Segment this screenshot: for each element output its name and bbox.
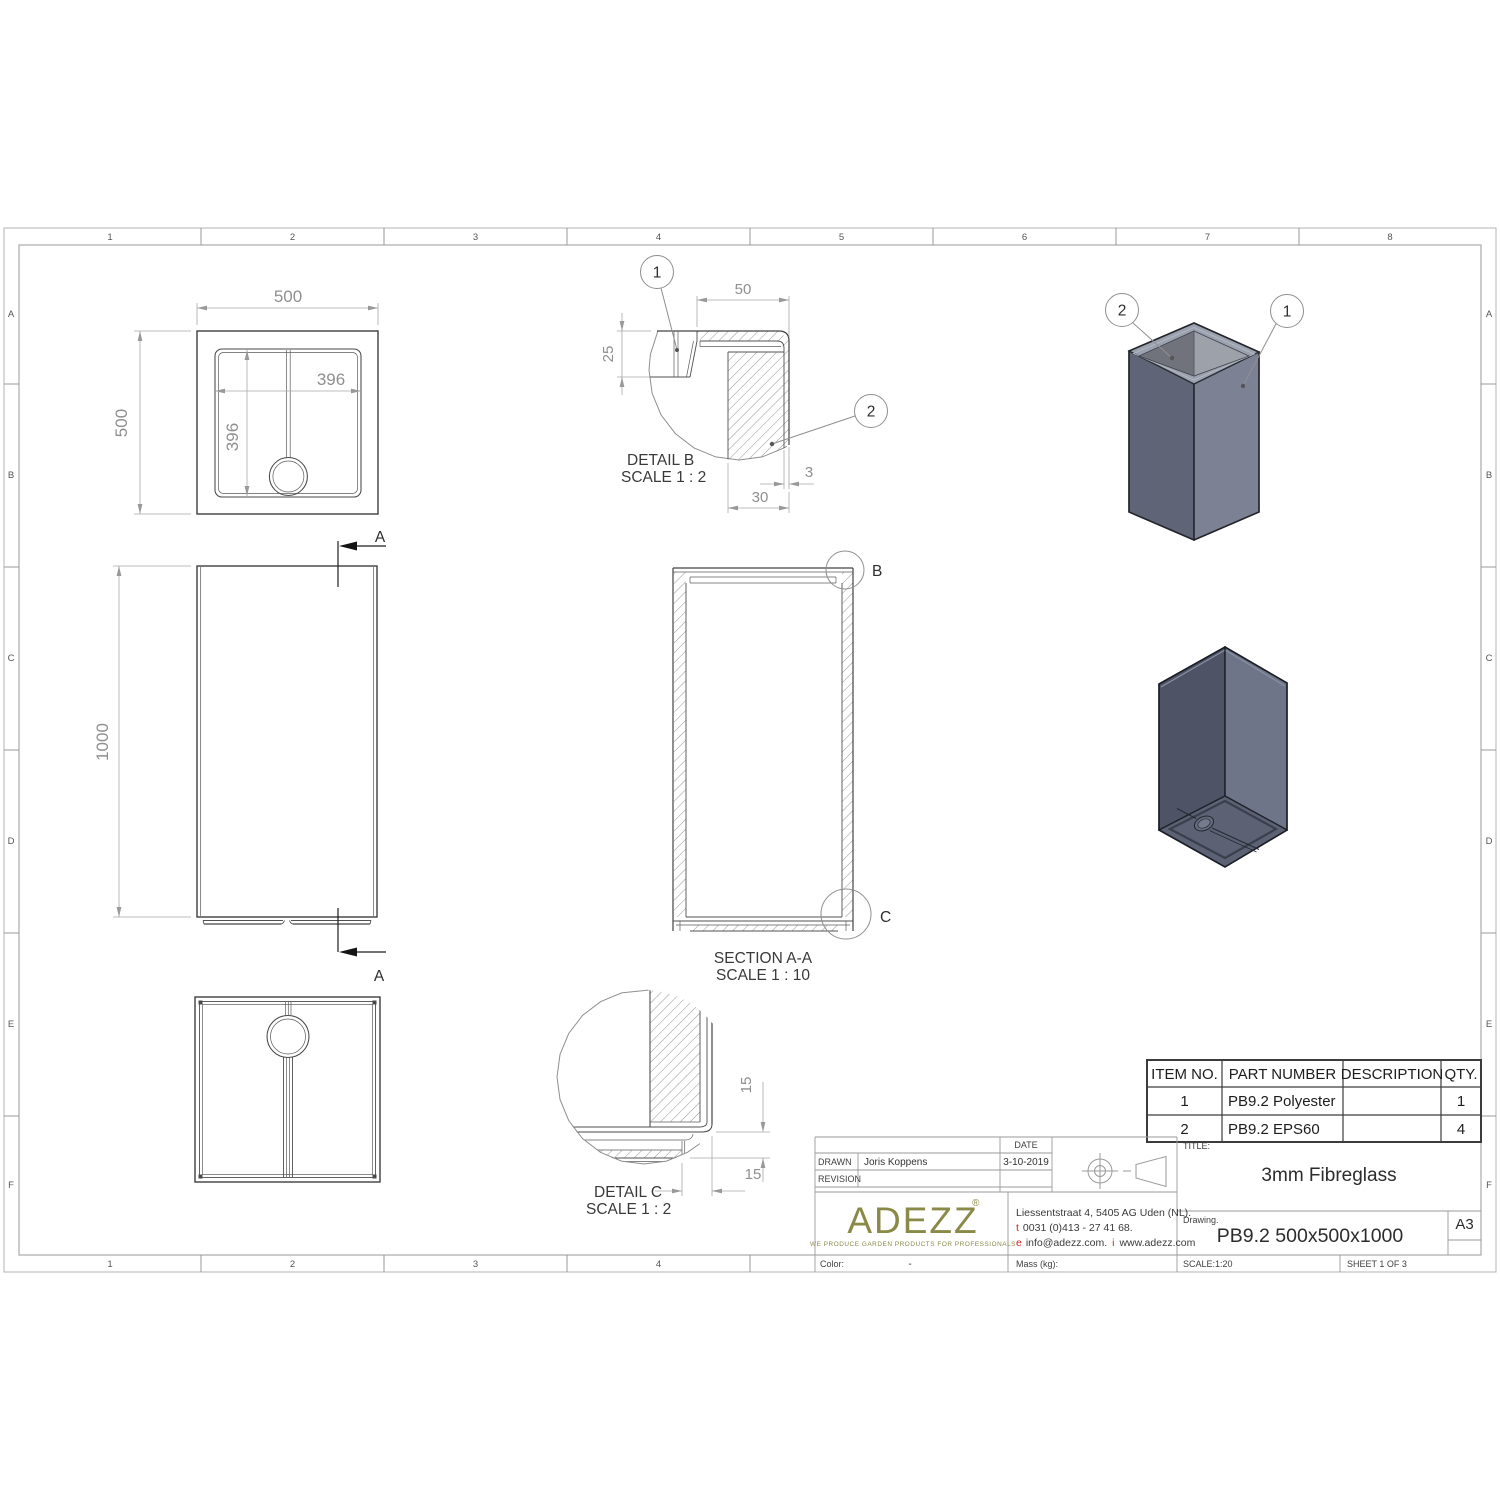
dim-wall-30: 30 (752, 489, 769, 506)
dim-inner-height: 396 (223, 423, 242, 451)
bom-header-description: DESCRIPTION (1341, 1066, 1444, 1083)
bom-part-number: PB9.2 Polyester (1228, 1093, 1336, 1110)
bom-qty: 1 (1457, 1093, 1465, 1110)
title-label: TITLE: (1183, 1141, 1210, 1151)
projection-symbol-icon (1082, 1153, 1166, 1189)
date-value: 3-10-2019 (1003, 1157, 1049, 1168)
title-block: DATE DRAWN Joris Koppens 3-10-2019 REVIS… (810, 1137, 1481, 1272)
revision-label: REVISION (818, 1174, 861, 1184)
bom-item-no: 1 (1180, 1093, 1188, 1110)
drawing-number: PB9.2 500x500x1000 (1217, 1225, 1404, 1247)
address-phone: t0031 (0)413 - 27 41 68. (1016, 1222, 1133, 1234)
dim-top-width: 500 (274, 287, 302, 306)
paper-size: A3 (1455, 1216, 1473, 1233)
dim-top-height: 500 (112, 409, 131, 437)
callout-2: 2 (867, 404, 876, 421)
detail-b-title: DETAIL B (627, 452, 694, 469)
callout-1: 1 (653, 265, 662, 282)
scale-text: SCALE:1:20 (1183, 1259, 1233, 1269)
detail-c-marker: C (880, 909, 891, 926)
dim-inner-width: 396 (317, 370, 345, 389)
drawing-label: Drawing. (1183, 1215, 1219, 1225)
bom-header-qty: QTY. (1444, 1066, 1477, 1083)
address-line1: Liessentstraat 4, 5405 AG Uden (NL). (1016, 1207, 1191, 1219)
grid-row-label: B (1486, 470, 1492, 481)
bom-row: 1 PB9.2 Polyester 1 (1180, 1093, 1465, 1110)
bom-header-item: ITEM NO. (1151, 1066, 1218, 1083)
grid-row-label: D (8, 836, 15, 847)
detail-b-scale: SCALE 1 : 2 (621, 469, 706, 486)
grid-col-label: 3 (473, 232, 478, 243)
dim-flange-50: 50 (735, 281, 752, 298)
grid-row-label: C (8, 653, 15, 664)
view-front: 1000 A A (93, 529, 386, 985)
bom-header-part: PART NUMBER (1229, 1066, 1337, 1083)
drawn-label: DRAWN (818, 1157, 852, 1167)
grid-row-label: D (1486, 836, 1493, 847)
grid-col-label: 1 (107, 232, 112, 243)
grid-col-label: 7 (1205, 232, 1210, 243)
bom-part-number: PB9.2 EPS60 (1228, 1121, 1320, 1138)
dim-foot-height-15: 15 (738, 1077, 755, 1094)
bom-item-no: 2 (1180, 1121, 1188, 1138)
drawing-title: 3mm Fibreglass (1261, 1165, 1396, 1186)
grid-row-label: F (8, 1180, 14, 1191)
dim-lip-25: 25 (600, 346, 617, 363)
bom-qty: 4 (1457, 1121, 1465, 1138)
iso-bottom-view (1159, 647, 1287, 867)
logo-name: ADEZZ (847, 1200, 978, 1241)
color-label: Color: (820, 1259, 844, 1269)
detail-b-marker: B (872, 563, 882, 580)
iso-top-view: 2 1 (1106, 294, 1304, 541)
grid-row-label: B (8, 470, 14, 481)
sheet-text: SHEET 1 OF 3 (1347, 1259, 1407, 1269)
adezz-logo: ADEZZ ® WE PRODUCE GARDEN PRODUCTS FOR P… (810, 1198, 1016, 1248)
grid-row-label: A (8, 309, 15, 320)
section-arrow-label-bottom: A (374, 968, 385, 985)
grid-col-label: 8 (1387, 232, 1392, 243)
grid-col-label: 4 (656, 232, 661, 243)
grid-row-label: C (1486, 653, 1493, 664)
drawing-sheet: 1 2 3 4 5 6 7 8 1 2 3 4 A B C D E F A B … (0, 0, 1500, 1500)
color-value: - (908, 1259, 911, 1270)
grid-col-label: 1 (107, 1259, 112, 1270)
detail-b: 50 25 3 30 1 2 DETAIL B SCALE 1 : 2 (600, 256, 888, 514)
iso-callout-2: 2 (1118, 303, 1127, 320)
grid-row-label: E (8, 1019, 14, 1030)
drawn-value: Joris Koppens (864, 1157, 927, 1168)
logo-registered-icon: ® (972, 1198, 980, 1209)
mass-label: Mass (kg): (1016, 1259, 1058, 1269)
detail-c-scale: SCALE 1 : 2 (586, 1201, 671, 1218)
section-aa-title: SECTION A-A (714, 950, 813, 967)
grid-col-label: 4 (656, 1259, 661, 1270)
dim-foot-width-15: 15 (745, 1166, 762, 1183)
detail-c-title: DETAIL C (594, 1184, 662, 1201)
dim-shell-3: 3 (805, 464, 813, 481)
logo-tagline: WE PRODUCE GARDEN PRODUCTS FOR PROFESSIO… (810, 1241, 1016, 1248)
cad-drawing-svg: 1 2 3 4 5 6 7 8 1 2 3 4 A B C D E F A B … (0, 0, 1500, 1500)
bom-row: 2 PB9.2 EPS60 4 (1180, 1121, 1465, 1138)
grid-row-label: F (1486, 1180, 1492, 1191)
grid-row-label: E (1486, 1019, 1492, 1030)
date-label: DATE (1014, 1140, 1037, 1150)
bom-table: ITEM NO. PART NUMBER DESCRIPTION QTY. 1 … (1147, 1060, 1481, 1142)
iso-callout-1: 1 (1283, 304, 1292, 321)
grid-col-label: 5 (839, 232, 844, 243)
address-web: einfo@adezz.com.iwww.adezz.com (1016, 1237, 1196, 1249)
grid-col-label: 2 (290, 1259, 295, 1270)
section-aa: B C SECTION A-A SCALE 1 : 10 (673, 551, 891, 984)
view-top: 500 500 396 396 (112, 287, 378, 514)
grid-col-label: 3 (473, 1259, 478, 1270)
detail-c: 15 15 DETAIL C SCALE 1 : 2 (557, 988, 770, 1218)
grid-col-label: 6 (1022, 232, 1027, 243)
grid-col-label: 2 (290, 232, 295, 243)
section-arrow-label-top: A (375, 529, 386, 546)
grid-row-label: A (1486, 309, 1493, 320)
company-address: Liessentstraat 4, 5405 AG Uden (NL). t00… (1016, 1207, 1196, 1249)
dim-front-height: 1000 (93, 723, 112, 761)
section-aa-scale: SCALE 1 : 10 (716, 967, 810, 984)
view-bottom (195, 997, 380, 1182)
